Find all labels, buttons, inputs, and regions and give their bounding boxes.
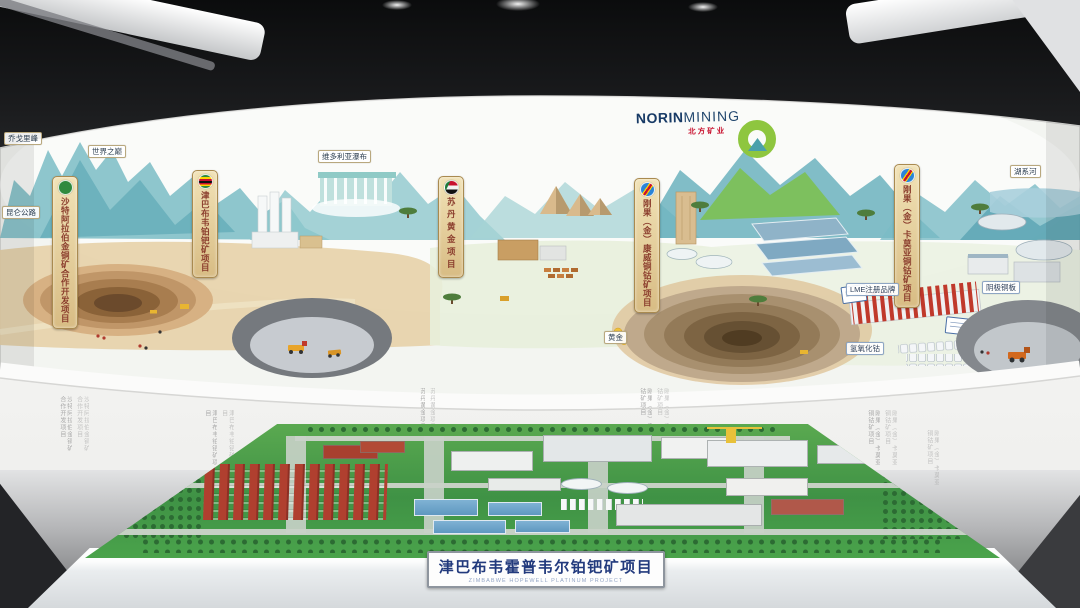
- model-pond: [515, 520, 570, 532]
- wall-text-drc-2: 刚果（金）卡莫亚铜钴矿项目 刚果（金）卡莫亚铜钴矿项目: [866, 410, 897, 468]
- banner-label: 刚果（金）康威铜钴矿项目: [643, 199, 652, 307]
- label-river: 湖系河: [1010, 165, 1041, 178]
- drc-flag-icon: [900, 168, 915, 183]
- wall-text-drc-2b: 刚果（金）卡莫亚铜钴矿项目: [925, 430, 939, 488]
- sudan-flag-icon: [444, 180, 459, 195]
- project-banner-sudan: 苏丹黄金项目: [438, 176, 464, 278]
- model-crane-arm: [707, 427, 762, 429]
- project-banner-drc-1: 刚果（金）康威铜钴矿项目: [634, 178, 660, 313]
- brand-name-light: MINING: [683, 108, 740, 125]
- zimbabwe-flag-icon: [198, 174, 213, 189]
- model-nameplate: 津巴布韦霍普韦尔铂钯矿项目 ZIMBABWE HOPEWELL PLATINUM…: [427, 551, 665, 588]
- banner-label: 苏丹黄金项目: [447, 197, 456, 272]
- model-clarifier: [561, 478, 602, 490]
- label-kunlun-road: 昆仑公路: [2, 206, 40, 219]
- model-housing-area: [203, 464, 388, 520]
- banner-label: 津巴布韦铂钯矿项目: [201, 191, 210, 272]
- model-building-red: [360, 441, 406, 453]
- model-building: [488, 478, 561, 491]
- model-clarifier: [607, 482, 648, 494]
- model-building: [451, 451, 533, 471]
- underground-mine-left: [232, 298, 392, 378]
- model-pond: [414, 499, 478, 516]
- model-road: [424, 436, 444, 532]
- label-victoria-falls: 维多利亚瀑布: [318, 150, 371, 163]
- saudi-flag-icon: [58, 180, 73, 195]
- brand-logo: NORINMINING 北方矿业: [636, 109, 741, 137]
- label-copper-cathode: 阴极铜板: [982, 281, 1020, 294]
- model-building-brick: [771, 499, 844, 515]
- brand-name-bold: NORIN: [636, 109, 684, 126]
- label-peak: 乔戈里峰: [4, 132, 42, 145]
- project-banner-saudi: 沙特阿拉伯金铜矿合作开发项目: [52, 176, 78, 329]
- banner-label: 刚果（金）卡莫亚铜钴矿项目: [903, 185, 912, 302]
- model-building: [543, 435, 653, 462]
- label-cobalt-hydroxide: 氢氧化钴: [846, 342, 884, 355]
- label-lme-brand: LME注册品牌: [846, 283, 899, 296]
- wall-text-saudi: 沙特阿拉伯金铜矿合作开发项目 沙特阿拉伯金铜矿合作开发项目: [58, 396, 89, 454]
- brand-name-chinese: 北方矿业: [688, 127, 740, 136]
- label-gold: 黄金: [604, 331, 627, 344]
- model-building: [707, 440, 808, 467]
- model-building-long: [616, 504, 762, 525]
- victoria-falls: [312, 172, 400, 217]
- drc-flag-icon: [640, 182, 655, 197]
- brand-logo-text: NORINMINING: [636, 109, 741, 128]
- banner-label: 沙特阿拉伯金铜矿合作开发项目: [61, 197, 70, 323]
- nameplate-english: ZIMBABWE HOPEWELL PLATINUM PROJECT: [433, 578, 659, 584]
- model-building: [726, 478, 808, 497]
- label-world-roof: 世界之巅: [88, 145, 126, 158]
- model-crane: [726, 427, 737, 443]
- nameplate-chinese: 津巴布韦霍普韦尔铂钯矿项目: [433, 556, 659, 577]
- model-pond: [433, 520, 506, 533]
- project-banner-zimbabwe: 津巴布韦铂钯矿项目: [192, 170, 218, 278]
- exhibition-photo: NORINMINING 北方矿业 沙特阿拉伯金铜矿合作开发项目 津巴布韦铂钯矿项…: [0, 0, 1080, 608]
- model-pond: [488, 502, 543, 517]
